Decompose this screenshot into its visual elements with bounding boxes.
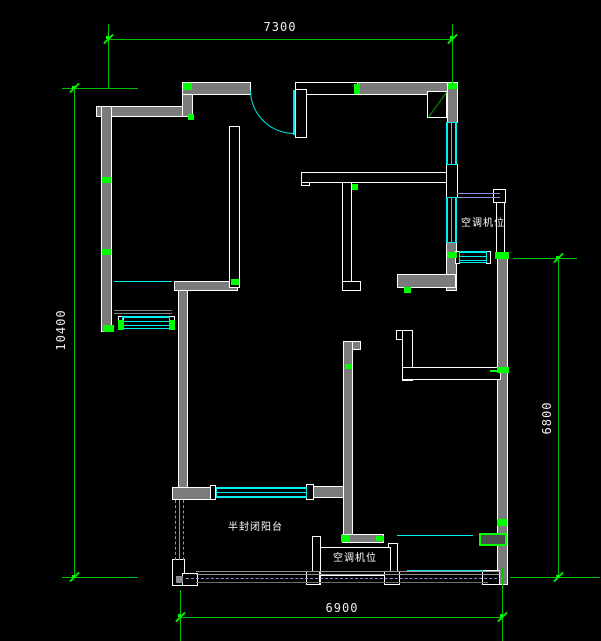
junction-marker [183, 83, 192, 90]
junction-marker [447, 252, 457, 258]
extension-line [502, 568, 503, 641]
window-cap [306, 484, 314, 500]
junction-marker [354, 84, 360, 94]
balcony-rail-line [179, 500, 180, 560]
junction-marker [495, 252, 509, 259]
extension-line [452, 24, 453, 86]
floorplan-canvas: 7300 10400 6800 6900 空调机位 空调机位 半封闭阳台 [0, 0, 601, 641]
wall-segment [397, 274, 456, 288]
ac-unit-label-bottom: 空调机位 [333, 553, 377, 564]
dimension-label-bottom: 6900 [314, 601, 370, 615]
wall-segment [182, 82, 251, 95]
bay-window [122, 316, 170, 329]
wall-segment [301, 172, 448, 183]
dimension-line-right [558, 258, 559, 578]
door-swing-arc [250, 90, 294, 134]
ac-condenser-box [479, 533, 507, 546]
balcony-window-band [216, 487, 307, 498]
dimension-label-left: 10400 [54, 300, 68, 360]
window [459, 251, 487, 263]
window [446, 197, 457, 243]
ac-platform-edge [457, 193, 500, 194]
wall-segment [172, 487, 214, 500]
bay-line [114, 310, 172, 311]
wall-segment [295, 89, 307, 138]
balcony-label: 半封闭阳台 [228, 522, 283, 533]
ac-unit-label-right: 空调机位 [461, 218, 505, 229]
dimension-dot [72, 575, 75, 578]
wall-segment [402, 367, 501, 380]
wall-segment [309, 486, 344, 498]
bay-sill-line [114, 281, 172, 282]
balcony-rail-line [196, 582, 488, 583]
dimension-dot [500, 614, 503, 617]
dimension-dot [450, 36, 453, 39]
door-leaf [293, 90, 295, 135]
wall-segment [342, 281, 361, 291]
dimension-label-right: 6800 [540, 388, 554, 448]
junction-marker [345, 364, 352, 369]
balcony-rail-line [196, 574, 501, 575]
wall-segment [493, 189, 506, 203]
sill-line [397, 535, 473, 536]
extension-line [513, 258, 577, 259]
dimension-line-bottom [180, 617, 502, 618]
dimension-line-top [108, 39, 453, 40]
junction-marker [118, 320, 124, 330]
wall-segment [343, 341, 353, 537]
balcony-rail-line [196, 571, 501, 572]
junction-marker [188, 114, 194, 120]
dimension-line-left [74, 88, 75, 578]
bay-line [114, 313, 172, 314]
junction-marker [341, 535, 350, 542]
junction-marker [169, 320, 175, 330]
balcony-dashed-line [175, 500, 176, 560]
balcony-dashed-line [183, 500, 184, 560]
junction-marker [497, 519, 507, 526]
dimension-dot [72, 86, 75, 89]
extension-line [108, 24, 109, 88]
window [446, 122, 457, 165]
dimension-dot [106, 36, 109, 39]
wall-segment [229, 126, 240, 288]
dimension-dot [556, 256, 559, 259]
wall-segment [342, 182, 352, 285]
junction-marker [102, 249, 111, 255]
ac-platform-edge [457, 197, 500, 198]
junction-marker [352, 184, 358, 190]
dimension-dot [178, 614, 181, 617]
dimension-dot [556, 575, 559, 578]
junction-marker [376, 536, 384, 541]
wall-segment [101, 106, 112, 332]
wall-segment [178, 290, 188, 488]
dimension-label-top: 7300 [252, 20, 308, 34]
junction-marker [490, 370, 499, 372]
junction-marker [102, 177, 111, 183]
column-core [176, 576, 183, 583]
junction-marker [103, 325, 114, 332]
junction-marker [231, 279, 239, 285]
junction-marker [404, 287, 411, 293]
balcony-dashed-line [186, 578, 502, 579]
